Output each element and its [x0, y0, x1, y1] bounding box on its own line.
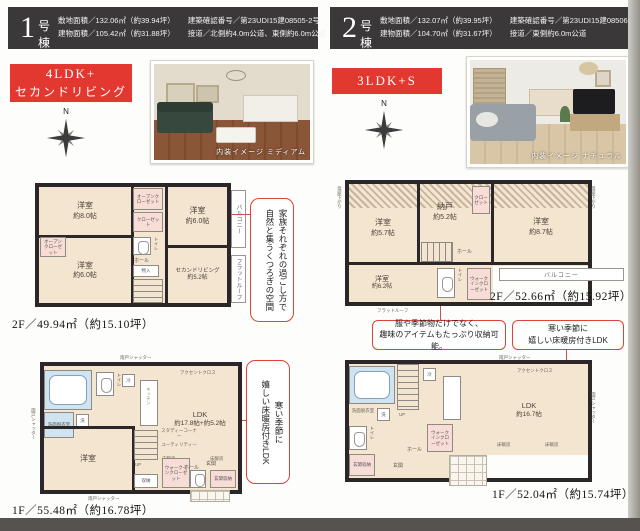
photo-caption: 内装イメージ ミディアム	[216, 147, 306, 157]
leader-line	[231, 214, 250, 215]
interior-photo-medium: 内装イメージ ミディアム	[150, 60, 314, 164]
wall-picture	[595, 70, 611, 86]
stairs	[421, 242, 453, 262]
room-size: 約6.0帖	[186, 217, 210, 226]
unit-suffix: 号棟	[360, 17, 372, 51]
room-bedroom1: 洋室 約5.7帖	[349, 198, 417, 258]
building-area: 建物面積／104.70㎡（約31.67坪）	[380, 28, 497, 41]
toilet-fixture-icon	[354, 432, 365, 447]
note-line: 寒い季節に	[272, 366, 285, 478]
room-name: LDK	[522, 401, 537, 411]
room-size: 約5.7帖	[371, 229, 395, 238]
compass-icon: N	[360, 100, 408, 157]
room-name: 洋室	[77, 261, 93, 271]
room-name: LDK	[193, 410, 208, 420]
floor-caption-b2-1f: 1F／52.04㎡（約15.74坪）	[492, 486, 634, 502]
stairs	[133, 279, 163, 303]
hall-label: ホール	[407, 446, 422, 453]
stairs	[397, 364, 419, 410]
floor-heating-label: 床暖房	[545, 442, 559, 447]
washroom-label: 洗面脱衣室	[351, 408, 375, 413]
shutter-label: 雨戸シャッター	[499, 355, 531, 360]
room-name: 洋室	[80, 454, 96, 464]
hall-label: ホール	[457, 248, 472, 255]
room-bedroom2: 洋室 約6.0帖	[168, 187, 227, 245]
bathtub-icon	[354, 371, 390, 399]
floor-heating-label: 床暖房	[497, 442, 511, 447]
room-bedroom: 洋室	[44, 429, 132, 490]
building2-header: 2 号棟 敷地面積／132.07㎡（約39.95坪） 建物面積／104.70㎡（…	[330, 7, 628, 49]
accent-cloth-label: アクセントクロス	[180, 370, 216, 375]
toilet-room	[349, 426, 367, 450]
fridge-box: 冷	[122, 374, 135, 387]
flyer-page: 1 号棟 敷地面積／132.06㎡（約39.94坪） 建物面積／105.42㎡（…	[0, 0, 640, 531]
kitchen-counter: キッチン	[140, 380, 158, 426]
room-name: 納戸	[437, 202, 453, 212]
walk-in-closet: ウォークインクローゼット	[467, 268, 491, 300]
room-size: 約8.0帖	[73, 212, 97, 221]
sloped-ceiling-label: 母屋下がり	[591, 186, 596, 209]
room-bedroom3: 洋室 約6.2帖	[349, 265, 415, 302]
entrance-storage: 玄関収納	[210, 470, 236, 488]
note-line: 嬉しい床暖房付きLDK	[259, 366, 272, 478]
wall-picture	[166, 83, 195, 104]
accent-cloth-label: アクセントクロス	[517, 368, 553, 373]
plant	[560, 106, 569, 123]
entrance-porch	[449, 455, 487, 486]
room-size: 約17.8帖+約5.2帖	[174, 420, 225, 428]
wall-picture	[196, 85, 219, 102]
entrance-porch	[190, 490, 230, 502]
permit-number: 建築確認番号／第23UDI15建08505-2号	[188, 15, 326, 28]
television	[573, 89, 615, 114]
sofa-cushion	[476, 112, 498, 127]
leader-line	[566, 350, 567, 360]
plan-type-line2: セカンドリビング	[10, 84, 132, 101]
toilet-label: トイレ	[153, 237, 159, 251]
sofa-backrest	[157, 102, 213, 112]
toilet-room	[190, 470, 206, 488]
plan-type-line1: 4LDK+	[10, 65, 132, 84]
interior-photo-canvas: 内装イメージ ナチュラル	[470, 60, 626, 164]
entrance-storage: 玄関収納	[349, 454, 375, 476]
kitchen-counter	[443, 376, 461, 420]
storage-box: 収納	[134, 474, 158, 488]
shutter-label: 雨戸シャッター	[88, 496, 120, 501]
room-name: 洋室	[533, 217, 549, 227]
floor-caption-b2-2f: 2F／52.66㎡（約15.92坪）	[490, 288, 632, 304]
room-name: 洋室	[375, 218, 391, 228]
storage-box: 物入	[133, 265, 159, 277]
room-size: 約6.2帖	[372, 284, 392, 292]
stairs-up-label: UP	[135, 462, 141, 467]
room-size: 約8.7帖	[529, 228, 553, 237]
pendant-light	[579, 62, 598, 74]
plan-type-line1: 3LDK+S	[332, 72, 442, 91]
note-line: 家族それぞれの過ごし方で	[276, 204, 289, 316]
building-area: 建物面積／105.42㎡（約31.88坪）	[58, 28, 175, 41]
closet: クローゼット	[472, 186, 490, 214]
toilet-room	[437, 268, 455, 298]
toilet-room	[96, 372, 114, 396]
flat-roof: フラットルーフ	[231, 255, 246, 303]
entrance-label: 玄関	[206, 460, 216, 467]
floor-caption-b1-2f: 2F／49.94㎡（約15.10坪）	[12, 316, 154, 332]
note-line: 服や季節物だけでなく、	[395, 318, 483, 330]
note-line: 寒い季節に	[548, 323, 588, 335]
toilet-fixture-icon	[138, 241, 149, 255]
stairs-up-label: UP	[399, 412, 405, 417]
coffee-table	[216, 127, 255, 142]
closet: クローゼット	[133, 212, 163, 232]
toilet-fixture-icon	[101, 378, 112, 393]
page-edge-shadow	[628, 0, 640, 531]
room-name: 洋室	[190, 206, 206, 216]
compass-north-label: N	[360, 100, 408, 108]
ceiling-light	[226, 70, 247, 82]
plan-type-badge: 4LDK+ セカンドリビング	[10, 64, 132, 102]
road-access: 接道／東側約6.0m公道	[510, 28, 635, 41]
sloped-ceiling-label: 母屋下がり	[337, 186, 342, 209]
entrance-label: 玄関	[393, 462, 403, 469]
toilet-label: トイレ	[369, 426, 375, 440]
site-area: 敷地面積／132.07㎡（約39.95坪）	[380, 15, 497, 28]
room-bedroom1: 洋室 約8.0帖	[39, 187, 131, 235]
washer-box: 洗	[377, 408, 390, 421]
room-bedroom2: 洋室 約8.7帖	[494, 194, 588, 260]
bathtub-icon	[49, 375, 87, 405]
unit-number: 2	[342, 13, 357, 43]
unit-suffix: 号棟	[38, 17, 50, 51]
walk-in-closet: ウォークインクローゼット	[427, 424, 453, 452]
interior-photo-natural: 内装イメージ ナチュラル	[466, 56, 630, 168]
plan-type-badge: 3LDK+S	[332, 68, 442, 94]
note-storage: 服や季節物だけでなく、 趣味のアイテムもたっぷり収納可能。	[372, 320, 506, 350]
kitchen-label: キッチン	[146, 387, 151, 405]
spec-column-1: 敷地面積／132.07㎡（約39.95坪） 建物面積／104.70㎡（約31.6…	[380, 15, 497, 41]
tv-board	[570, 114, 620, 131]
shutter-label: 雨戸シャッター	[120, 355, 152, 360]
room-size: 約6.0帖	[73, 271, 97, 280]
utility-label: ユーティリティー	[160, 442, 198, 447]
floorplan-b1-1f: 洗面脱衣室 洗 トイレ 冷 キッチン LDK 約17.8帖+約5.2帖 アクセン…	[40, 362, 242, 494]
spec-column-2: 建築確認番号／第23UDI15建08505-2号 接道／北側約4.0m公道、東側…	[188, 15, 326, 41]
permit-number: 建築確認番号／第23UDI15建08506号	[510, 15, 635, 28]
open-closet: オープンクローゼット	[40, 237, 66, 257]
compass-north-label: N	[42, 108, 90, 116]
site-area: 敷地面積／132.06㎡（約39.94坪）	[58, 15, 175, 28]
note-floor-heating-b1: 寒い季節に 嬉しい床暖房付きLDK	[246, 360, 290, 484]
toilet-fixture-icon	[195, 474, 205, 487]
compass-rose-icon	[44, 116, 88, 160]
open-closet: オープンクローゼット	[133, 188, 163, 210]
room-size: 約16.7帖	[516, 411, 542, 419]
unit-number: 1	[20, 13, 35, 43]
compass-rose-icon	[362, 108, 406, 152]
shutter-label: 雨戸シャッター	[31, 408, 36, 440]
balcony: バルコニー	[499, 268, 624, 281]
toilet-fixture-icon	[442, 277, 453, 292]
balcony: バルコニー	[231, 190, 246, 248]
note-family-space: 家族それぞれの過ごし方で 自然と集うくつろぎの空間	[250, 198, 294, 322]
toilet-label: トイレ	[457, 268, 463, 282]
spec-column-2: 建築確認番号／第23UDI15建08506号 接道／東側約6.0m公道	[510, 15, 635, 41]
floorplan-b2-1f: 洗面脱衣室 洗 UP 冷 LDK 約16.7帖 アクセントクロス 床暖房 床暖房…	[345, 360, 592, 482]
footer-bar	[0, 518, 640, 531]
floorplan-b1-2f: 洋室 約8.0帖 洋室 約6.0帖 洋室 約6.0帖 セカンドリビング 約5.2…	[35, 183, 231, 307]
fridge-box: 冷	[423, 368, 436, 381]
spec-column-1: 敷地面積／132.06㎡（約39.94坪） 建物面積／105.42㎡（約31.8…	[58, 15, 175, 41]
room-second-living: セカンドリビング 約5.2帖	[168, 248, 227, 303]
note-line: 嬉しい床暖房付きLDK	[528, 335, 608, 347]
study-corner-label: スタディーコーナー	[160, 428, 198, 439]
photo-caption: 内装イメージ ナチュラル	[531, 151, 622, 161]
room-storage-nando: 納戸 約5.2帖	[420, 184, 470, 240]
room-name: 洋室	[77, 201, 93, 211]
note-floor-heating-b2: 寒い季節に 嬉しい床暖房付きLDK	[512, 320, 624, 350]
flat-roof-label: フラットルーフ	[377, 308, 408, 313]
building1-header: 1 号棟 敷地面積／132.06㎡（約39.94坪） 建物面積／105.42㎡（…	[8, 7, 318, 49]
room-size: 約5.2帖	[433, 213, 457, 222]
room-name: 洋室	[375, 275, 389, 284]
kitchen-counter	[243, 95, 298, 122]
floor-caption-b1-1f: 1F／55.48㎡（約16.78坪）	[12, 502, 154, 518]
compass-icon: N	[42, 108, 90, 165]
room-ldk: LDK 約16.7帖	[479, 382, 579, 438]
hall-label: ホール	[134, 257, 149, 264]
note-line: 自然と集うくつろぎの空間	[263, 204, 276, 316]
footprint-cutout	[487, 455, 588, 478]
stairs	[134, 430, 158, 460]
room-size: 約5.2帖	[187, 275, 207, 283]
toilet-room	[133, 237, 151, 255]
interior-photo-canvas: 内装イメージ ミディアム	[154, 64, 310, 160]
note-line: 趣味のアイテムもたっぷり収納可能。	[373, 329, 505, 352]
road-access: 接道／北側約4.0m公道、東側約6.0m公道	[188, 28, 326, 41]
walk-in-closet: ウォークインクローゼット	[162, 458, 190, 488]
shutter-label: 雨戸シャッター	[591, 392, 596, 424]
